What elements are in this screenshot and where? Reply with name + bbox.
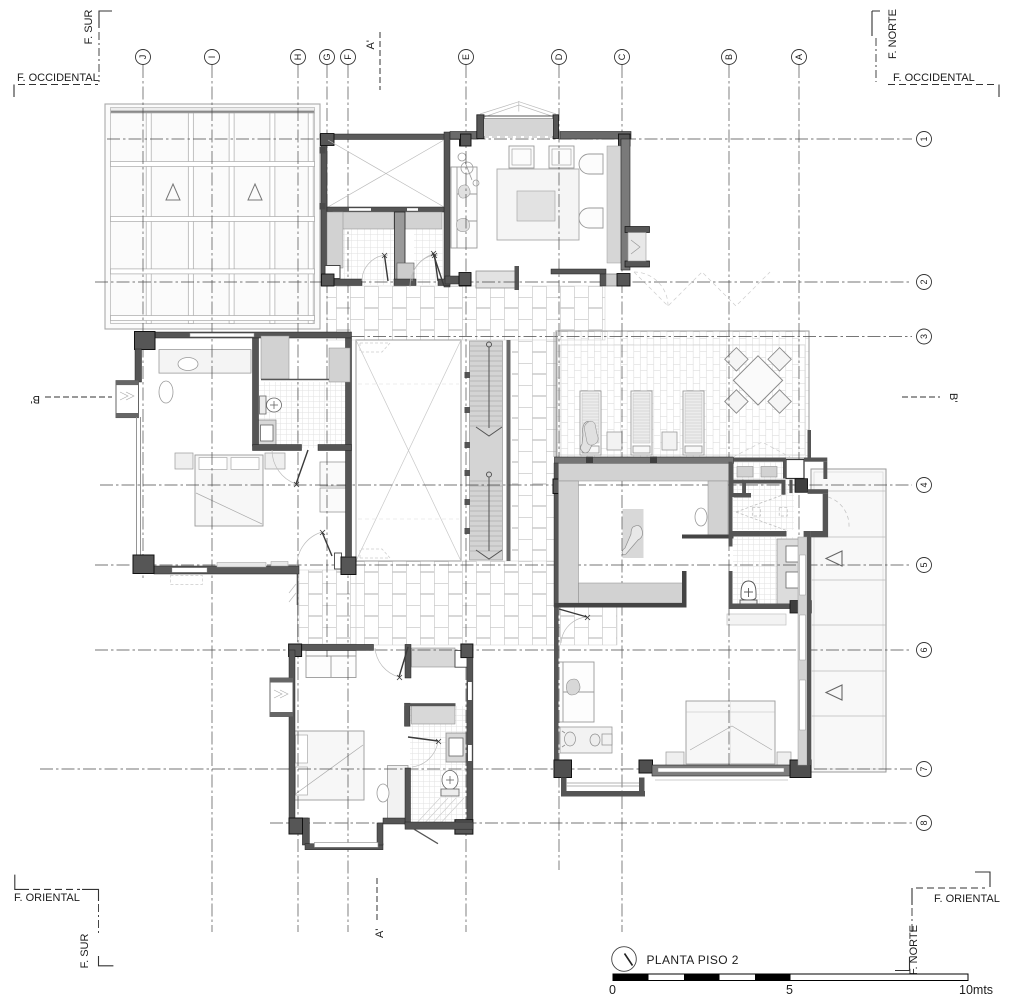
svg-text:B: B <box>724 54 734 60</box>
svg-text:F. OCCIDENTAL: F. OCCIDENTAL <box>893 72 975 84</box>
svg-text:A: A <box>794 54 804 60</box>
svg-text:8: 8 <box>919 820 929 825</box>
svg-text:B': B' <box>947 393 959 402</box>
svg-text:PLANTA PISO 2: PLANTA PISO 2 <box>647 953 739 967</box>
svg-text:C: C <box>617 53 627 60</box>
svg-text:F: F <box>343 54 353 60</box>
svg-text:10mts: 10mts <box>959 983 993 997</box>
svg-text:E: E <box>461 54 471 60</box>
svg-text:6: 6 <box>919 647 929 652</box>
svg-text:2: 2 <box>919 279 929 284</box>
svg-text:5: 5 <box>786 983 793 997</box>
svg-text:F. SUR: F. SUR <box>83 10 95 45</box>
svg-text:D: D <box>554 53 564 60</box>
svg-text:1: 1 <box>919 136 929 141</box>
svg-text:A': A' <box>374 929 386 938</box>
svg-text:0: 0 <box>609 983 616 997</box>
svg-text:7: 7 <box>919 766 929 771</box>
svg-text:F. SUR: F. SUR <box>79 934 91 969</box>
svg-text:F. OCCIDENTAL: F. OCCIDENTAL <box>17 72 99 84</box>
svg-text:I: I <box>207 56 217 59</box>
svg-text:F. NORTE: F. NORTE <box>887 9 899 59</box>
svg-text:A': A' <box>365 40 377 49</box>
svg-text:G: G <box>322 53 332 60</box>
svg-text:H: H <box>293 54 303 61</box>
svg-text:F. ORIENTAL: F. ORIENTAL <box>934 893 1000 905</box>
svg-text:F. ORIENTAL: F. ORIENTAL <box>14 892 80 904</box>
svg-text:4: 4 <box>919 482 929 487</box>
svg-text:J: J <box>138 55 148 60</box>
svg-text:3: 3 <box>919 334 929 339</box>
svg-text:B': B' <box>31 393 40 405</box>
svg-text:5: 5 <box>919 562 929 567</box>
